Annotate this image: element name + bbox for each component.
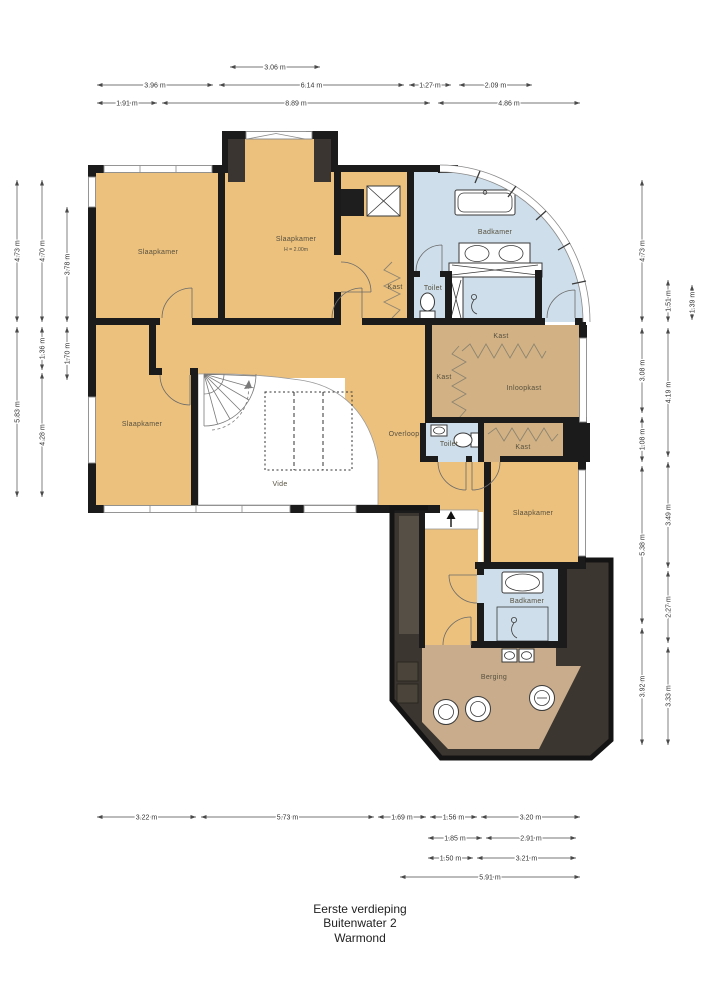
dimension: 1.85 m [428,835,482,842]
dimension: 3.22 m [97,814,196,821]
dimension-label: 1.56 m [443,814,465,821]
dimension: 1.27 m [409,82,451,89]
double-sink-icon [459,243,530,264]
dimension: 3.33 m [665,647,672,745]
dimension-label: 2.09 m [485,82,507,89]
bathtub-icon [455,190,515,215]
dimension-label: 4.86 m [498,100,520,107]
plan-title-city: Warmond [250,931,470,945]
dimension-label: 8.89 m [285,100,307,107]
dimension: 4.19 m [665,328,672,457]
dimension: 5.73 m [201,814,374,821]
dimension-label: 3.33 m [665,685,672,707]
dimension-label: 1.50 m [440,855,462,862]
dimension-label: 3.49 m [665,504,672,526]
dimension-label: 3.92 m [639,676,646,698]
dimension: 4.86 m [438,100,580,107]
room-slaapkamer-1 [91,168,225,325]
dimension-label: 4.73 m [14,240,21,262]
installation-unit-icon [397,662,418,681]
washer-icon [434,700,459,725]
dimension: 2.91 m [486,835,576,842]
room-label-kast-1: Kast [387,284,402,291]
dimension: 2.09 m [459,82,532,89]
dimension-label: 1.36 m [39,338,46,360]
room-label-slaapkamer-1: Slaapkamer [138,249,179,256]
dimension: 1.51 m [665,280,672,322]
dimension: 1.39 m [689,285,696,320]
dimension-label: 4.19 m [665,382,672,404]
dimension-label: 1.08 m [639,429,646,451]
dimension-label: 4.73 m [639,240,646,262]
room-corridor [420,460,478,648]
installation-unit-icon [397,684,418,703]
cabinet-icon [367,186,400,216]
dimension-label: 1.27 m [419,82,441,89]
dimension-label: 4.70 m [39,240,46,262]
dimension-label: 5.83 m [14,401,21,423]
dimension: 1.56 m [430,814,477,821]
dimension-label: 2.91 m [520,835,542,842]
dimension-label: 4.28 m [39,424,46,446]
dimension: 1.70 m [64,327,71,380]
dimension: 4.70 m [39,180,46,322]
room-label-toilet-2: Toilet [440,441,458,448]
dimension: 3.08 m [639,328,646,413]
dimension-label: 1.69 m [391,814,413,821]
toilet-icon [420,293,435,319]
dimension-label: 3.08 m [639,360,646,382]
room-label-overloop: Overloop [389,431,420,438]
dimension-label: 1.51 m [665,290,672,312]
floor-plan: SlaapkamerSlaapkamerH = 2.00mSlaapkamerS… [0,0,707,1000]
washer-icon [466,697,491,722]
dimension-label: 1.85 m [444,835,466,842]
dimension: 1.91 m [97,100,157,107]
dimension: 8.89 m [162,100,430,107]
dimension: 3.06 m [230,64,320,71]
sink-icon [519,649,534,662]
dimension: 3.49 m [665,462,672,568]
dimension-label: 3.06 m [264,64,286,71]
dimension: 1.08 m [639,417,646,462]
room-label-slaapkamer-3: Slaapkamer [122,421,163,428]
dimension: 3.78 m [64,207,71,322]
dimension-label: 5.91 m [479,874,501,881]
dimension-label: 5.73 m [277,814,299,821]
room-label-slaapkamer-2: Slaapkamer [276,236,317,243]
plan-title-address: Buitenwater 2 [250,916,470,930]
dimension: 4.73 m [639,180,646,322]
dimension-label: 1.91 m [116,100,138,107]
room-sublabel-slaapkamer-2: H = 2.00m [284,247,308,253]
dimension-label: 6.14 m [301,82,323,89]
dimension-label: 1.39 m [689,292,696,314]
plan-title-floor: Eerste verdieping [250,902,470,916]
dimension-label: 3.78 m [64,254,71,276]
room-label-kast-3: Kast [436,374,451,381]
dimension-label: 3.20 m [520,814,542,821]
dimension: 4.73 m [14,180,21,322]
room-label-badkamer-2: Badkamer [510,598,545,605]
dimension-label: 3.96 m [144,82,166,89]
dimension-label: 3.22 m [136,814,158,821]
dimension: 2.27 m [665,571,672,643]
dimension: 4.28 m [39,373,46,497]
dimension: 3.21 m [477,855,576,862]
dimension: 1.50 m [428,855,473,862]
cabinet-icon [338,189,364,216]
room-label-slaapkamer-4: Slaapkamer [513,510,554,517]
dimension: 5.91 m [400,874,580,881]
dimension: 3.20 m [481,814,580,821]
dimension-label: 1.70 m [64,343,71,365]
dimension: 5.38 m [639,466,646,624]
room-label-inloopkast: Inloopkast [507,385,542,392]
room-label-kast-4: Kast [515,444,530,451]
dimension: 5.83 m [14,327,21,497]
dimension: 3.92 m [639,628,646,745]
room-label-toilet-1: Toilet [424,285,442,292]
room-label-berging: Berging [481,674,507,681]
bathtub-icon [502,572,543,593]
sink-icon [431,425,447,436]
dimension: 3.96 m [97,82,213,89]
dimension: 6.14 m [219,82,404,89]
room-label-kast-2: Kast [493,333,508,340]
sink-icon [502,649,517,662]
room-label-vide: Vide [272,481,287,488]
dimension: 1.36 m [39,327,46,370]
dimension-label: 5.38 m [639,534,646,556]
dimension-label: 2.27 m [665,596,672,618]
dimension: 1.69 m [378,814,426,821]
plan-title-block: Eerste verdieping Buitenwater 2 Warmond [250,902,470,945]
dryer-icon [530,686,555,711]
dimension-label: 3.21 m [516,855,538,862]
room-label-badkamer-1: Badkamer [478,229,513,236]
bay-window [246,132,312,140]
